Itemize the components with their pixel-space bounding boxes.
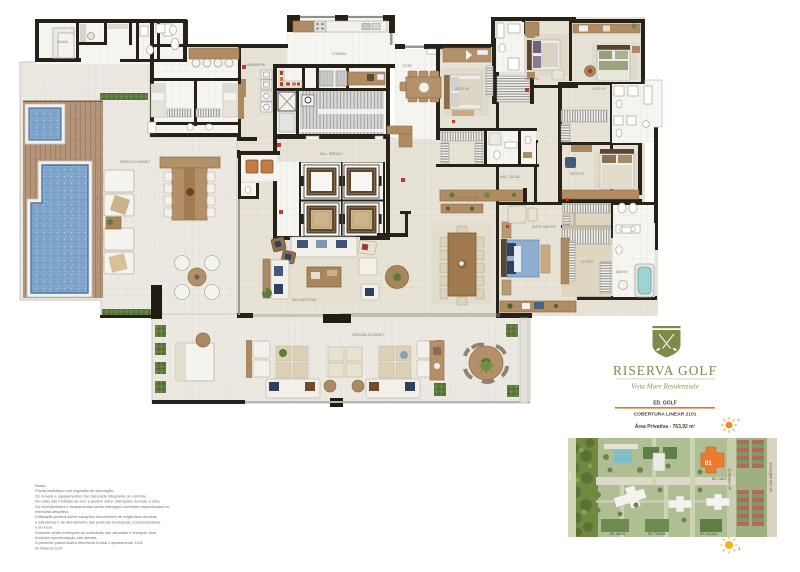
svg-text:SALA DE ESTAR: SALA DE ESTAR [292,298,317,302]
svg-text:VARANDA GOURMET: VARANDA GOURMET [352,333,384,337]
svg-text:e estruturais e de atendimento: e estruturais e de atendimento das postu… [35,519,160,524]
svg-text:ED. GOLF: ED. GOLF [653,401,677,407]
svg-text:SUÍTE 04: SUÍTE 04 [525,77,539,81]
svg-text:ED. TENNIS: ED. TENNIS [648,532,666,536]
svg-text:SUÍTE 02: SUÍTE 02 [570,172,584,176]
svg-text:SALA DE JANTAR: SALA DE JANTAR [452,196,479,200]
svg-text:AV. DAS AMÉRICAS: AV. DAS AMÉRICAS [768,463,773,492]
svg-text:SUÍTE 03: SUÍTE 03 [592,87,606,91]
svg-text:CLOSET: CLOSET [581,260,594,264]
svg-text:LAVANDERIA: LAVANDERIA [245,63,266,67]
svg-text:ED. ACQUA: ED. ACQUA [700,532,718,536]
svg-text:HALL SERVIÇO: HALL SERVIÇO [320,152,344,156]
svg-text:BANHO: BANHO [616,270,628,274]
svg-text:AV. PREFEITO: AV. PREFEITO [728,468,732,490]
svg-text:01: 01 [705,461,712,467]
svg-text:ESPAÇO GOURMET: ESPAÇO GOURMET [120,160,150,164]
svg-text:HALL SOCIAL: HALL SOCIAL [500,175,521,179]
svg-text:SAUNA: SAUNA [57,40,69,44]
svg-text:SUÍTE MASTER: SUÍTE MASTER [532,225,556,229]
svg-text:Vista Mare Residenziale: Vista Mare Residenziale [631,383,699,391]
svg-text:ED. MARE: ED. MARE [610,532,625,536]
svg-text:SUÍTE 05: SUÍTE 05 [455,87,469,91]
svg-text:PRAIA: PRAIA [568,471,572,480]
svg-text:do Riserva Golf.: do Riserva Golf. [35,545,63,550]
svg-text:RISERVA GOLF: RISERVA GOLF [613,363,717,378]
svg-text:COBERTURA LINEAR 2101: COBERTURA LINEAR 2101 [634,412,697,418]
svg-text:COZINHA: COZINHA [332,52,347,56]
svg-text:Área Privativa - 763,92 m²: Área Privativa - 763,92 m² [635,423,696,430]
svg-text:ED. GOLF: ED. GOLF [712,477,727,481]
svg-text:COPA: COPA [403,64,413,68]
